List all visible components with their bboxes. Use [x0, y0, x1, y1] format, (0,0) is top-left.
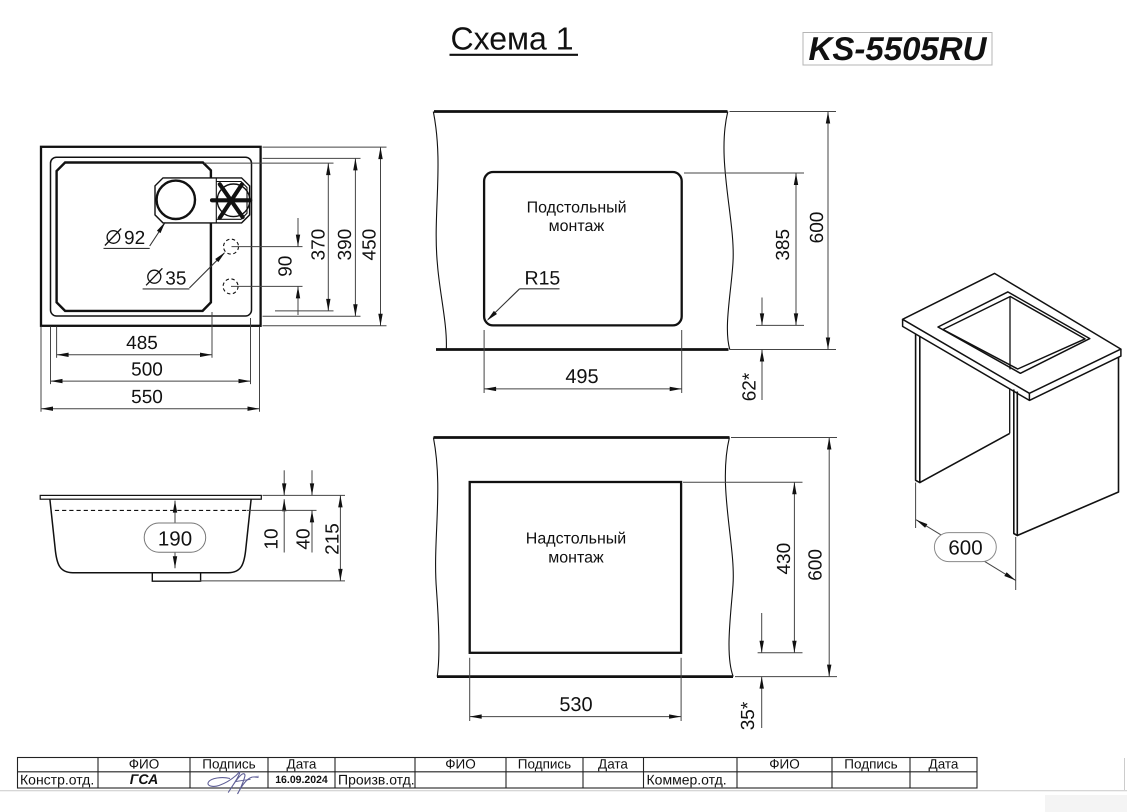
svg-text:430: 430	[774, 543, 795, 575]
svg-text:35*: 35*	[738, 701, 759, 730]
svg-text:500: 500	[131, 359, 163, 380]
svg-text:Дата: Дата	[598, 757, 628, 772]
svg-text:Подпись: Подпись	[202, 757, 255, 772]
svg-text:Подстольный: Подстольный	[527, 199, 627, 216]
svg-text:215: 215	[322, 523, 343, 555]
svg-text:монтаж: монтаж	[548, 550, 604, 567]
svg-text:Коммер.отд.: Коммер.отд.	[647, 772, 727, 788]
svg-text:Дата: Дата	[929, 757, 959, 772]
svg-text:600: 600	[806, 549, 827, 581]
svg-text:Надстольный: Надстольный	[526, 531, 626, 548]
svg-text:Констр.отд.: Констр.отд.	[20, 772, 94, 788]
svg-text:600: 600	[807, 212, 828, 244]
svg-text:ФИО: ФИО	[129, 757, 159, 772]
svg-text:16.09.2024: 16.09.2024	[275, 774, 328, 786]
svg-text:Дата: Дата	[287, 757, 317, 772]
svg-text:ГСА: ГСА	[130, 771, 158, 787]
svg-text:92: 92	[124, 228, 145, 249]
svg-text:ФИО: ФИО	[769, 757, 799, 772]
svg-text:550: 550	[131, 387, 163, 408]
svg-text:62*: 62*	[739, 372, 760, 401]
svg-text:370: 370	[309, 229, 330, 261]
svg-text:Схема 1: Схема 1	[450, 21, 573, 57]
svg-text:ФИО: ФИО	[445, 757, 475, 772]
svg-text:монтаж: монтаж	[549, 218, 605, 235]
svg-text:600: 600	[948, 537, 982, 560]
svg-text:Подпись: Подпись	[844, 757, 897, 772]
svg-text:190: 190	[158, 528, 192, 551]
svg-text:450: 450	[360, 229, 381, 261]
svg-text:10: 10	[262, 528, 283, 549]
svg-text:35: 35	[165, 269, 186, 290]
svg-text:390: 390	[335, 229, 356, 261]
svg-text:530: 530	[559, 694, 592, 716]
svg-text:90: 90	[276, 256, 297, 277]
svg-text:R15: R15	[525, 268, 561, 290]
svg-text:KS-5505RU: KS-5505RU	[809, 30, 988, 67]
svg-text:Произв.отд.: Произв.отд.	[338, 772, 415, 788]
svg-text:385: 385	[773, 229, 794, 261]
svg-text:485: 485	[126, 333, 158, 354]
svg-text:Подпись: Подпись	[518, 757, 571, 772]
svg-text:495: 495	[565, 366, 598, 388]
svg-text:40: 40	[293, 528, 314, 549]
